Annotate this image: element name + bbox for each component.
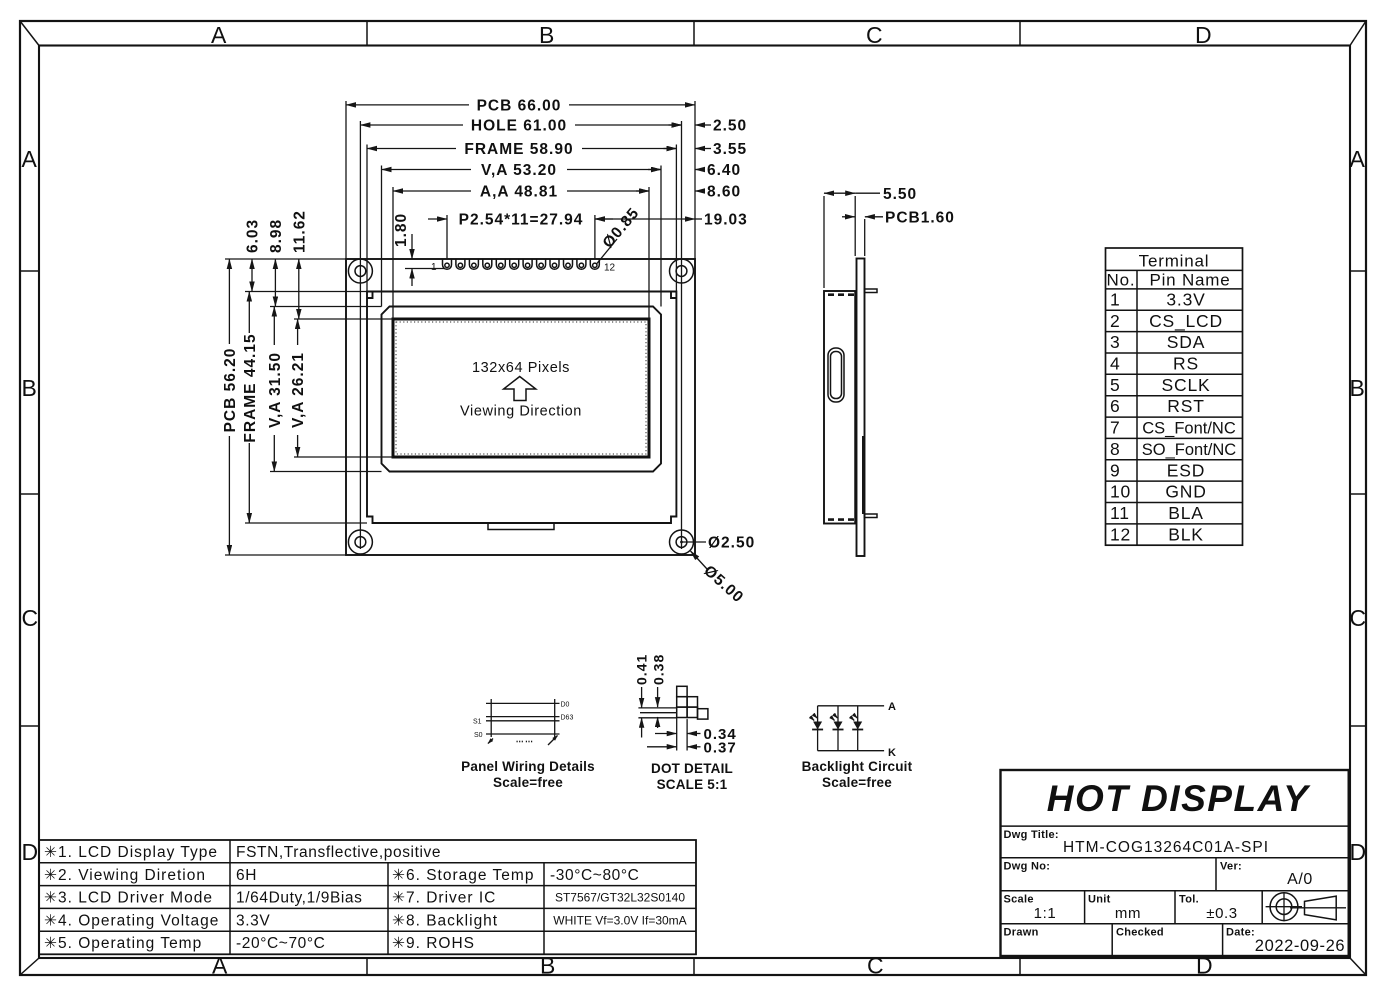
svg-text:FSTN,Transflective,positive: FSTN,Transflective,positive bbox=[236, 844, 441, 861]
svg-text:HOT DISPLAY: HOT DISPLAY bbox=[1047, 778, 1311, 819]
svg-text:C: C bbox=[866, 22, 883, 48]
svg-text:6: 6 bbox=[1110, 396, 1121, 416]
svg-text:19.03: 19.03 bbox=[704, 212, 748, 229]
svg-text:PCB1.60: PCB1.60 bbox=[885, 209, 955, 226]
svg-text:1:1: 1:1 bbox=[1034, 905, 1057, 922]
svg-text:1/64Duty,1/9Bias: 1/64Duty,1/9Bias bbox=[236, 890, 363, 907]
svg-text:Unit: Unit bbox=[1088, 894, 1111, 906]
svg-text:✳3. LCD Driver Mode: ✳3. LCD Driver Mode bbox=[44, 890, 213, 907]
svg-text:D: D bbox=[1350, 839, 1367, 865]
svg-text:Checked: Checked bbox=[1116, 927, 1164, 939]
svg-text:K: K bbox=[888, 747, 896, 759]
svg-text:6H: 6H bbox=[236, 867, 257, 884]
svg-text:✳6. Storage Temp: ✳6. Storage Temp bbox=[392, 867, 534, 884]
svg-text:C: C bbox=[867, 953, 884, 979]
svg-text:Tol.: Tol. bbox=[1179, 894, 1199, 906]
svg-text:Terminal: Terminal bbox=[1139, 252, 1210, 271]
svg-text:6.40: 6.40 bbox=[707, 162, 741, 179]
svg-text:Scale=free: Scale=free bbox=[493, 775, 563, 790]
svg-text:HOLE 61.00: HOLE 61.00 bbox=[471, 118, 567, 135]
svg-text:12: 12 bbox=[604, 263, 616, 274]
svg-text:B: B bbox=[540, 953, 555, 979]
svg-text:V,A 26.21: V,A 26.21 bbox=[290, 352, 307, 428]
svg-text:A: A bbox=[22, 146, 38, 172]
svg-text:Viewing Direction: Viewing Direction bbox=[460, 404, 582, 420]
svg-text:Dwg Title:: Dwg Title: bbox=[1004, 829, 1059, 841]
svg-text:1: 1 bbox=[1110, 289, 1121, 309]
svg-text:A: A bbox=[212, 953, 228, 979]
svg-text:RST: RST bbox=[1167, 396, 1204, 416]
svg-text:Panel Wiring Details: Panel Wiring Details bbox=[461, 759, 595, 774]
svg-text:8.98: 8.98 bbox=[268, 219, 285, 253]
svg-text:11.62: 11.62 bbox=[291, 210, 308, 253]
svg-text:CS_Font/NC: CS_Font/NC bbox=[1142, 420, 1236, 438]
svg-text:A,A 48.81: A,A 48.81 bbox=[480, 184, 558, 201]
svg-text:8.60: 8.60 bbox=[707, 184, 741, 201]
svg-text:8: 8 bbox=[1110, 439, 1121, 459]
svg-text:SO_Font/NC: SO_Font/NC bbox=[1142, 441, 1237, 459]
svg-text:Date:: Date: bbox=[1226, 927, 1255, 939]
svg-text:SCLK: SCLK bbox=[1162, 375, 1211, 395]
svg-text:P2.54*11=27.94: P2.54*11=27.94 bbox=[459, 212, 584, 229]
svg-text:V,A 53.20: V,A 53.20 bbox=[481, 162, 557, 179]
svg-text:BLK: BLK bbox=[1168, 524, 1203, 544]
svg-text:A: A bbox=[888, 701, 896, 713]
svg-text:9: 9 bbox=[1110, 460, 1121, 480]
svg-text:3: 3 bbox=[1110, 332, 1121, 352]
svg-text:S0: S0 bbox=[474, 732, 483, 739]
svg-text:6.03: 6.03 bbox=[245, 219, 262, 253]
svg-text:BLA: BLA bbox=[1168, 503, 1203, 523]
svg-text:C: C bbox=[1350, 605, 1367, 631]
svg-text:Backlight Circuit: Backlight Circuit bbox=[802, 759, 913, 774]
svg-text:RS: RS bbox=[1173, 354, 1199, 374]
svg-text:7: 7 bbox=[1110, 418, 1121, 438]
svg-text:Ver:: Ver: bbox=[1220, 861, 1242, 873]
svg-text:1: 1 bbox=[431, 262, 437, 273]
svg-text:FRAME 58.90: FRAME 58.90 bbox=[464, 141, 573, 158]
svg-text:D63: D63 bbox=[561, 715, 574, 722]
svg-text:D: D bbox=[1195, 22, 1212, 48]
svg-text:A: A bbox=[211, 22, 227, 48]
svg-text:Ø2.50: Ø2.50 bbox=[708, 535, 755, 552]
svg-text:0.37: 0.37 bbox=[704, 739, 737, 756]
svg-text:CS_LCD: CS_LCD bbox=[1149, 311, 1223, 332]
svg-text:Pin Name: Pin Name bbox=[1149, 271, 1230, 290]
svg-text:✳8. Backlight: ✳8. Backlight bbox=[392, 912, 498, 929]
svg-text:12: 12 bbox=[1110, 524, 1131, 544]
svg-text:±0.3: ±0.3 bbox=[1206, 905, 1238, 922]
svg-text:✳2. Viewing Diretion: ✳2. Viewing Diretion bbox=[44, 867, 206, 884]
svg-text:2: 2 bbox=[1110, 311, 1121, 331]
svg-text:WHITE Vf=3.0V If=30mA: WHITE Vf=3.0V If=30mA bbox=[553, 913, 686, 927]
svg-text:FRAME 44.15: FRAME 44.15 bbox=[242, 333, 259, 442]
svg-text:PCB 66.00: PCB 66.00 bbox=[477, 97, 562, 114]
svg-text:Scale=free: Scale=free bbox=[822, 775, 892, 790]
svg-text:1.80: 1.80 bbox=[393, 213, 410, 247]
svg-text:132x64 Pixels: 132x64 Pixels bbox=[472, 360, 570, 376]
svg-text:A: A bbox=[1350, 146, 1366, 172]
svg-text:ESD: ESD bbox=[1167, 460, 1205, 480]
svg-text:3.3V: 3.3V bbox=[236, 912, 270, 929]
svg-text:mm: mm bbox=[1115, 905, 1141, 922]
svg-text:-30°C~80°C: -30°C~80°C bbox=[550, 867, 639, 884]
svg-text:✳5. Operating Temp: ✳5. Operating Temp bbox=[44, 935, 202, 952]
svg-text:2.50: 2.50 bbox=[713, 118, 747, 135]
svg-text:✳7. Driver IC: ✳7. Driver IC bbox=[392, 890, 496, 907]
svg-text:V,A 31.50: V,A 31.50 bbox=[267, 352, 284, 428]
svg-text:0.38: 0.38 bbox=[651, 654, 667, 685]
svg-text:SCALE 5:1: SCALE 5:1 bbox=[657, 777, 728, 792]
svg-text:✳4. Operating Voltage: ✳4. Operating Voltage bbox=[44, 912, 219, 929]
svg-text:Drawn: Drawn bbox=[1004, 927, 1039, 939]
svg-text:5.50: 5.50 bbox=[883, 186, 917, 203]
svg-text:DOT DETAIL: DOT DETAIL bbox=[651, 761, 733, 776]
svg-text:SDA: SDA bbox=[1167, 332, 1205, 352]
svg-text:C: C bbox=[22, 605, 39, 631]
svg-text:✳1. LCD Display Type: ✳1. LCD Display Type bbox=[44, 844, 218, 861]
svg-text:2022-09-26: 2022-09-26 bbox=[1255, 937, 1345, 955]
svg-text:3.3V: 3.3V bbox=[1166, 289, 1205, 309]
svg-text:B: B bbox=[1350, 375, 1365, 401]
svg-text:GND: GND bbox=[1165, 482, 1206, 502]
svg-text:B: B bbox=[539, 22, 554, 48]
svg-text:10: 10 bbox=[1110, 482, 1131, 502]
svg-text:Dwg No:: Dwg No: bbox=[1004, 861, 1051, 873]
svg-text:ST7567/GT32L32S0140: ST7567/GT32L32S0140 bbox=[555, 891, 685, 905]
svg-text:-20°C~70°C: -20°C~70°C bbox=[236, 935, 325, 952]
svg-text:✳9. ROHS: ✳9. ROHS bbox=[392, 935, 475, 952]
svg-text:A/0: A/0 bbox=[1287, 871, 1313, 888]
svg-text:4: 4 bbox=[1110, 354, 1121, 374]
svg-text:PCB 56.20: PCB 56.20 bbox=[222, 348, 239, 433]
svg-text:B: B bbox=[22, 375, 37, 401]
svg-text:No.: No. bbox=[1107, 271, 1136, 290]
svg-text:D0: D0 bbox=[561, 702, 570, 709]
svg-text:HTM-COG13264C01A-SPI: HTM-COG13264C01A-SPI bbox=[1063, 839, 1269, 856]
svg-text:3.55: 3.55 bbox=[713, 141, 747, 158]
svg-text:D: D bbox=[22, 839, 39, 865]
svg-text:0.41: 0.41 bbox=[634, 654, 650, 685]
svg-text:S1: S1 bbox=[473, 719, 482, 726]
svg-text:5: 5 bbox=[1110, 375, 1121, 395]
svg-text:Scale: Scale bbox=[1004, 894, 1034, 906]
svg-text:11: 11 bbox=[1110, 503, 1130, 523]
